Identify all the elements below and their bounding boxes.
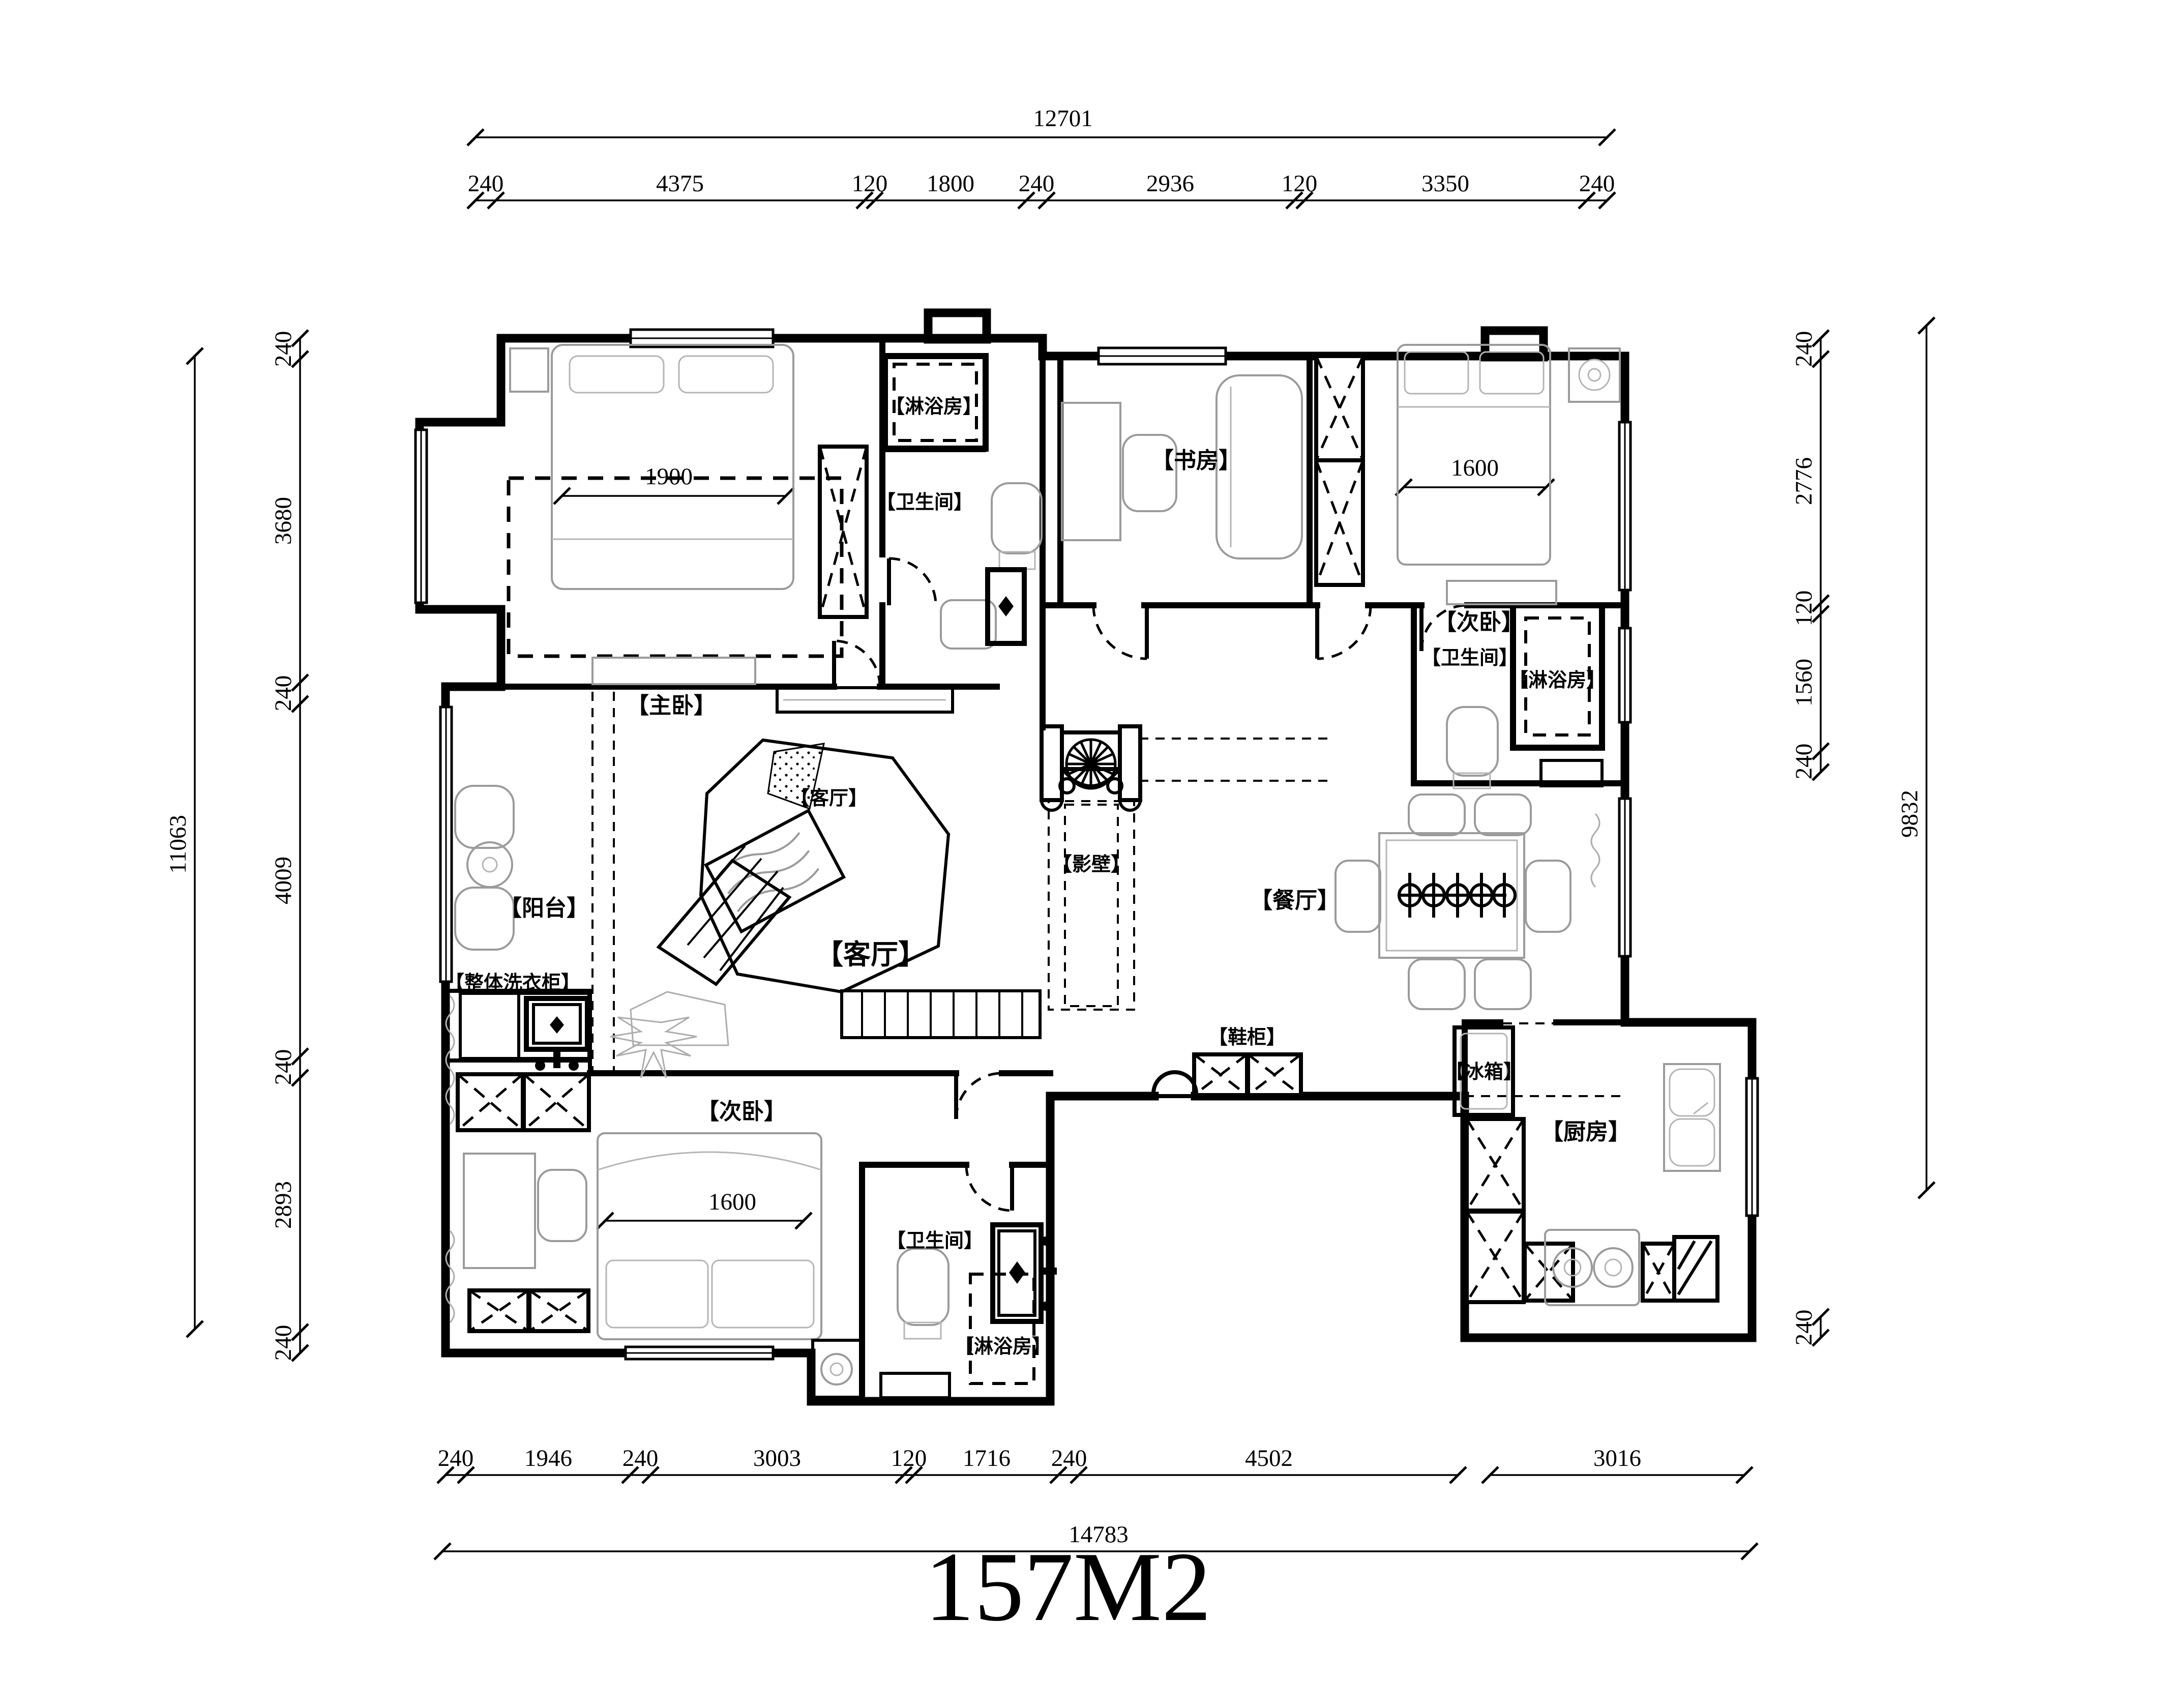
tv-wall: [777, 688, 953, 712]
hall-border-dashed: [1139, 739, 1332, 781]
label-shower-bottom: 【淋浴房】: [955, 1336, 1051, 1358]
dim-top-5: 2936: [1146, 170, 1194, 197]
label-bath-top: 【卫生间】: [876, 492, 973, 513]
wardrobe-bedroom2-b: [529, 1290, 588, 1331]
curtain-symbols: [446, 814, 1599, 1322]
dim-right-kitchen: 240: [1791, 1310, 1817, 1346]
dim-right-2: 120: [1791, 591, 1817, 627]
label-bedroom2-top: 【次卧】: [1434, 610, 1524, 635]
dim-left-2: 240: [270, 675, 296, 712]
master-nightstand: [510, 348, 548, 392]
living-rug-piano: [659, 740, 1040, 1038]
bath-bottom-fixtures: [881, 1249, 950, 1398]
entry-runner-outer: [1049, 801, 1134, 1010]
label-study: 【书房】: [1151, 448, 1241, 473]
dining-candles: [1399, 873, 1515, 918]
balcony-furniture: [455, 786, 514, 950]
label-fridge: 【冰箱】: [1445, 1062, 1523, 1083]
dim-right-1: 2776: [1791, 457, 1817, 505]
windows: [416, 330, 1758, 1359]
balcony-chair-1: [455, 786, 514, 848]
dim-top-6: 120: [1282, 170, 1318, 197]
toilet-top: [992, 483, 1042, 553]
study-desk: [1062, 403, 1120, 540]
black-fixtures: [460, 570, 1057, 1321]
dim-right-4: 240: [1791, 744, 1817, 780]
dim-bottom-5: 1716: [963, 1445, 1011, 1471]
vanity-bath-top: [988, 570, 1024, 643]
plan-title: 157M2: [925, 1532, 1211, 1642]
bed-bottom: [598, 1133, 821, 1339]
kitchen-sink: [1664, 1064, 1720, 1171]
dim-bottom-4: 120: [891, 1445, 927, 1471]
balcony-divider-dashed: [592, 692, 614, 1071]
wardrobe-master: [820, 447, 867, 617]
dim-bottom-2: 240: [622, 1445, 659, 1471]
kitchen-corner-unit: [1674, 1237, 1717, 1301]
label-screen-wall: 【影壁】: [1053, 854, 1130, 875]
dim-top-2: 120: [852, 170, 888, 197]
label-shower-top: 【淋浴房】: [885, 396, 982, 418]
kitchen-counter-b: [1467, 1212, 1524, 1302]
bedroom2-top-dresser: [1447, 581, 1556, 604]
label-bath-bottom: 【卫生间】: [886, 1230, 983, 1252]
label-balcony: 【阳台】: [499, 896, 589, 921]
dim-bottom-8: 3016: [1593, 1445, 1641, 1471]
dim-left-5: 2893: [270, 1181, 296, 1229]
floorplan-canvas: 【主卧】 【淋浴房】 【卫生间】 【书房】 【次卧】 【卫生间】 【淋浴房】 【…: [0, 0, 2165, 1708]
wardrobe-laundry-a: [458, 1074, 523, 1130]
label-living-tv: 【客厅】: [790, 787, 868, 809]
plant-leaves: [610, 1017, 697, 1078]
label-dining: 【餐厅】: [1250, 888, 1340, 913]
dim-right-total: 9832: [1896, 790, 1923, 838]
dim-bed2-top: 1600: [1451, 455, 1499, 481]
wardrobe-corridor-b: [1316, 460, 1363, 585]
dim-left-4: 240: [270, 1049, 296, 1085]
kitchen-counter-a: [1467, 1119, 1524, 1211]
screen-wall-feature: [1042, 726, 1196, 1096]
dim-left-0: 240: [270, 331, 296, 367]
door-arc-bedroom2-bottom: [956, 1073, 1002, 1119]
dining-chair-s2: [1475, 959, 1531, 1009]
bedroom2-chair: [538, 1170, 586, 1241]
laundry-cabinet: [460, 993, 589, 1071]
wardrobe-hatched-boxes: [458, 356, 1674, 1331]
dim-master-bed: 1900: [645, 463, 693, 490]
dining-chair-w: [1336, 861, 1380, 932]
label-master-bedroom: 【主卧】: [627, 693, 716, 718]
dim-right-3: 1560: [1791, 659, 1817, 706]
living-plant: [610, 992, 728, 1078]
dim-top-3: 1800: [927, 170, 974, 197]
wardrobe-laundry-b: [524, 1074, 589, 1130]
shoe-cabinet-box-a: [1194, 1054, 1247, 1095]
dim-left-1: 3680: [270, 497, 296, 545]
toilet-bottom: [898, 1249, 948, 1325]
dim-top-4: 240: [1019, 170, 1055, 197]
door-arc-bath-bottom: [966, 1165, 1012, 1211]
rug-fringe-s: [842, 991, 1040, 1038]
dim-left-total: 11063: [165, 815, 191, 874]
door-arc-bedroom2-top: [1317, 605, 1371, 659]
dim-bottom-1: 1946: [524, 1445, 572, 1471]
washing-machine: [813, 1340, 861, 1397]
label-shower-right: 【淋浴房】: [1509, 670, 1606, 691]
dim-top-0: 240: [468, 170, 504, 197]
dim-top-1: 4375: [656, 170, 704, 197]
dim-bottom-0: 240: [438, 1445, 474, 1471]
dim-right-0: 240: [1791, 331, 1817, 367]
dining-chair-e: [1526, 861, 1570, 932]
study-chair: [1123, 435, 1176, 511]
master-dresser: [592, 658, 755, 684]
kitchen-counter-d: [1643, 1244, 1674, 1301]
toilet-right: [1447, 707, 1498, 776]
dimension-labels: 12701 240 4375 120 1800 240 2936 120 335…: [165, 105, 1923, 1548]
dim-bottom-3: 3003: [753, 1445, 801, 1471]
door-arc-study: [1093, 605, 1147, 659]
dim-left-6: 240: [270, 1325, 296, 1361]
balcony-table: [467, 842, 512, 887]
cabinet-bath-bottom: [881, 1373, 950, 1398]
label-kitchen: 【厨房】: [1541, 1120, 1630, 1144]
floorplan-page: 【主卧】 【淋浴房】 【卫生间】 【书房】 【次卧】 【卫生间】 【淋浴房】 【…: [0, 0, 2165, 1708]
dim-top-total: 12701: [1033, 105, 1093, 132]
bedroom2-desk: [464, 1154, 535, 1268]
entry-runner-inner: [1065, 805, 1118, 1006]
shoe-cabinet-box-b: [1248, 1054, 1301, 1095]
dim-bottom-6: 240: [1051, 1445, 1087, 1471]
laundry-faucet-diamond: [550, 1016, 564, 1034]
label-bath-right: 【卫生间】: [1421, 647, 1518, 669]
wardrobe-bedroom2-a: [469, 1290, 528, 1331]
room-labels: 【主卧】 【淋浴房】 【卫生间】 【书房】 【次卧】 【卫生间】 【淋浴房】 【…: [445, 396, 1630, 1358]
dining-chair-n1: [1409, 794, 1465, 835]
dining-chair-n2: [1475, 794, 1531, 835]
dim-top-8: 240: [1579, 170, 1615, 197]
entry-door-arch: [1153, 1072, 1196, 1096]
dim-left-3: 4009: [270, 857, 296, 904]
master-rug-dashed: [509, 478, 842, 656]
dim-bottom-7: 4502: [1245, 1445, 1293, 1471]
label-shoe-cabinet: 【鞋柜】: [1208, 1027, 1286, 1048]
dim-bed2-bottom: 1600: [708, 1189, 756, 1215]
door-arc-bath-top: [889, 558, 936, 605]
screen-wall-fan: [1066, 740, 1115, 788]
dining-chair-s1: [1409, 959, 1465, 1009]
label-laundry: 【整体洗衣柜】: [445, 973, 580, 994]
shower-box-bottom: [970, 1274, 1034, 1383]
wardrobe-corridor-a: [1316, 356, 1363, 460]
label-bedroom2-bottom: 【次卧】: [697, 1099, 786, 1124]
dining-set: [1336, 794, 1570, 1009]
dim-top-7: 3350: [1421, 170, 1469, 197]
label-living-main: 【客厅】: [816, 939, 926, 970]
